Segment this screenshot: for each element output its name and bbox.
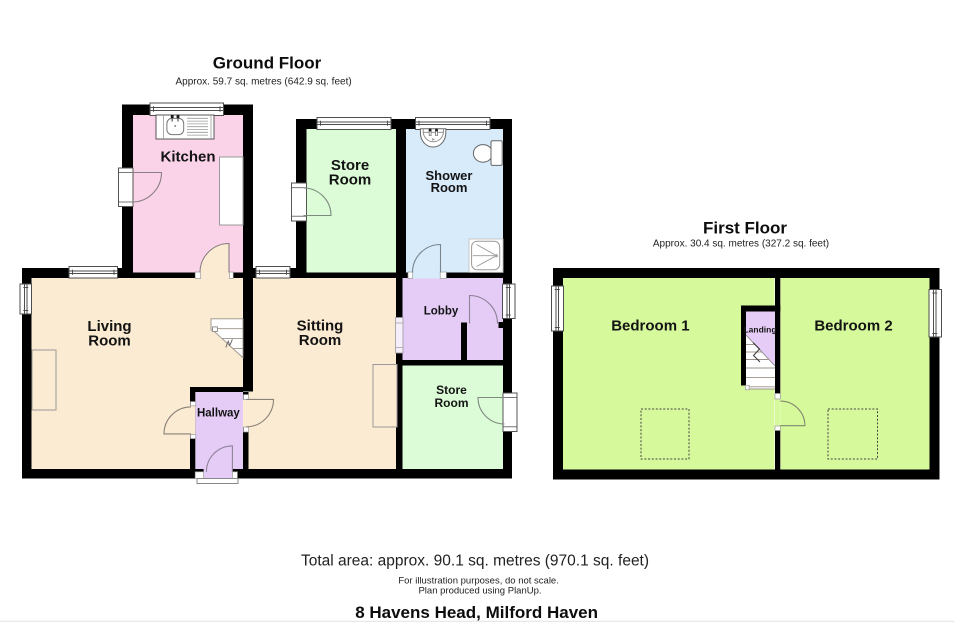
svg-text:Ground Floor: Ground Floor xyxy=(213,54,322,73)
svg-text:8 Havens Head, Milford Haven: 8 Havens Head, Milford Haven xyxy=(355,603,598,622)
svg-text:Room: Room xyxy=(88,332,131,349)
svg-text:Plan produced using PlanUp.: Plan produced using PlanUp. xyxy=(418,586,541,597)
svg-text:Store: Store xyxy=(436,383,467,397)
svg-text:Landing: Landing xyxy=(743,325,776,335)
svg-text:Total area: approx. 90.1 sq. m: Total area: approx. 90.1 sq. metres (970… xyxy=(301,553,649,570)
svg-text:Approx. 30.4 sq. metres (327.2: Approx. 30.4 sq. metres (327.2 sq. feet) xyxy=(653,239,829,250)
svg-text:Room: Room xyxy=(329,172,372,189)
svg-text:Room: Room xyxy=(431,180,468,195)
svg-text:First Floor: First Floor xyxy=(703,218,787,237)
svg-text:Kitchen: Kitchen xyxy=(160,149,215,166)
svg-text:Lobby: Lobby xyxy=(424,305,459,317)
svg-text:Approx. 59.7 sq. metres (642.9: Approx. 59.7 sq. metres (642.9 sq. feet) xyxy=(175,77,351,88)
svg-text:Room: Room xyxy=(299,332,342,349)
svg-text:Bedroom 2: Bedroom 2 xyxy=(814,317,892,334)
svg-text:Bedroom 1: Bedroom 1 xyxy=(611,317,689,334)
svg-text:Hallway: Hallway xyxy=(197,408,240,420)
svg-text:Room: Room xyxy=(435,396,469,410)
